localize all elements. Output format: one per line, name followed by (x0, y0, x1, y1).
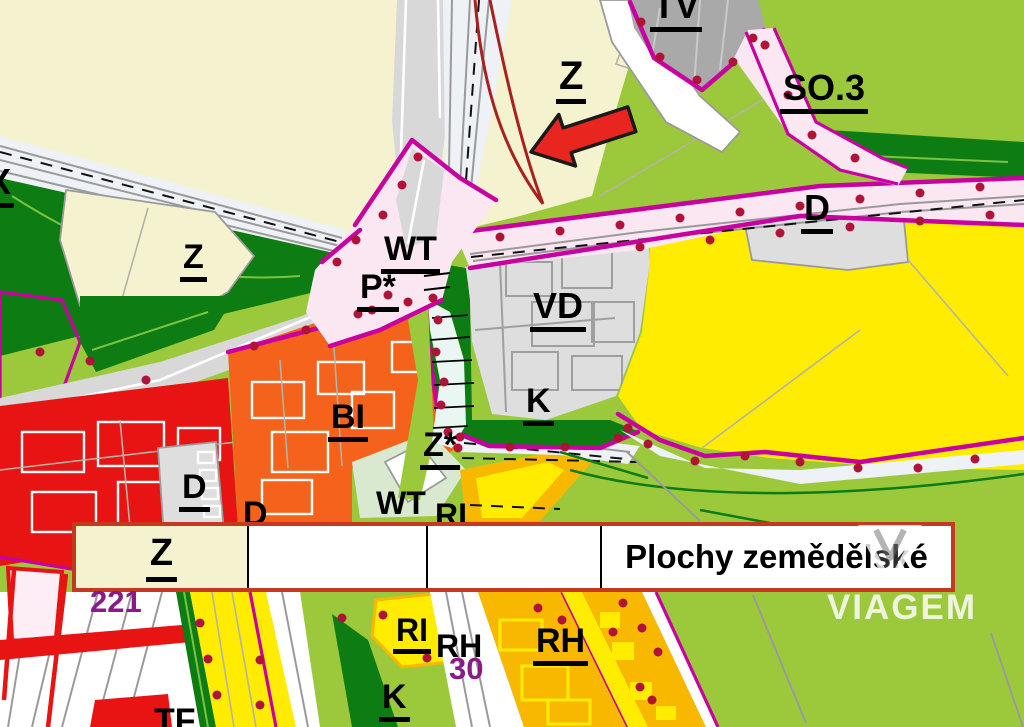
zone-label-z-top: Z (556, 56, 586, 104)
zone-label-tf: TF (154, 704, 196, 727)
zone-label-wt-2: WT (376, 487, 426, 519)
legend-bar: Z Plochy zemědělské (72, 522, 955, 592)
zone-label-vd: VD (530, 288, 586, 332)
zone-label-p-star: P* (357, 270, 399, 312)
parcel-number-30: 30 (449, 653, 483, 684)
parcel-number-221: 221 (90, 586, 142, 617)
zone-label-k-mid: K (523, 384, 554, 426)
zone-label-ri-bottom: RI (393, 614, 431, 654)
zone-label-d-right: D (801, 190, 833, 234)
legend-cell-symbol: Z (76, 526, 249, 588)
viagem-watermark: VIAGEM (820, 588, 984, 628)
legend-symbol-z: Z (146, 532, 177, 582)
viagem-logo-icon (852, 522, 928, 590)
legend-cell-swatch-2 (428, 526, 602, 588)
zone-label-x-left: X (0, 164, 14, 208)
zone-label-rh-2: RH (533, 624, 588, 666)
zone-label-d-strip: D (179, 470, 210, 512)
zone-label-z-left: Z (180, 240, 207, 282)
legend-cell-swatch-1 (249, 526, 428, 588)
zone-label-z-star: Z* (420, 428, 460, 470)
zone-label-bi: BI (328, 400, 368, 442)
zone-label-tv: TV (650, 0, 702, 32)
zone-label-so3: SO.3 (780, 70, 868, 114)
zoning-map-screenshot: TV Z SO.3 D X Z WT P* VD K BI Z* D D WT … (0, 0, 1024, 727)
zone-label-k-bottom: K (379, 680, 410, 722)
